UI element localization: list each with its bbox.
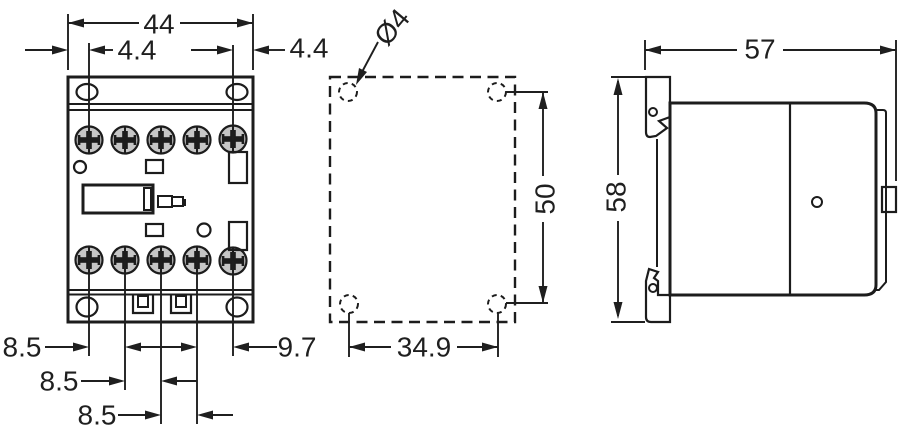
mounting-outline [330,77,515,322]
side-view: 57 58 [601,34,897,323]
front-aux-slot-bottom [229,222,247,250]
side-body-dot [812,197,822,207]
side-front-tab [882,187,896,212]
screw-terminal [184,127,211,154]
mounting-dimensions: Ø4 50 34.9 [349,3,561,363]
front-indicator-dot [74,161,86,173]
front-slot-bottom-left [77,298,98,317]
dim-pitch1-label: 8.5 [3,332,42,363]
front-dimensions: 44 4.4 4.4 8.5 9.7 8.5 [3,9,329,431]
mounting-hole-view: Ø4 50 34.9 [330,3,561,363]
mounting-clip [133,296,153,313]
mounting-clip [171,296,191,313]
front-indicator-dot-2 [198,224,211,237]
technical-drawing-canvas: 44 4.4 4.4 8.5 9.7 8.5 [0,0,916,441]
dim-vertical-pitch-label: 50 [530,183,561,214]
mounting-hole-top-right [488,83,506,101]
dim-offset-right-label: 4.4 [290,33,329,64]
front-vent-bottom [146,224,163,236]
dim-hole-diameter-label: Ø4 [368,3,416,52]
front-label-window [83,185,153,213]
screw-terminal [148,127,175,154]
side-flange-hole-bottom [649,284,657,292]
front-slot-bottom-right [227,298,248,317]
front-aux-slot-top [229,152,247,183]
mounting-hole-bottom-right [488,295,506,313]
side-body [670,103,876,295]
dimension-drawing: 44 4.4 4.4 8.5 9.7 8.5 [0,0,916,441]
dim-pitch-right-label: 9.7 [278,332,317,363]
front-connector-a [158,196,172,207]
screw-terminal [112,127,139,154]
dim-horizontal-pitch-label: 34.9 [397,332,452,363]
side-flange-bottom [646,269,670,322]
front-slot-top-left [77,84,98,100]
dim-depth-label: 57 [744,34,775,65]
front-view: 44 4.4 4.4 8.5 9.7 8.5 [3,9,329,431]
mounting-hole-top-left [339,83,357,101]
front-slot-top-right [227,84,248,100]
mounting-hole-bottom-left [340,295,358,313]
side-flange-top [646,77,670,137]
front-connector-pin [182,199,186,206]
front-connector-b [172,197,183,206]
dim-height-label: 58 [601,181,632,212]
dim-pitch3-label: 8.5 [78,400,117,431]
dim-offset-left-label: 4.4 [118,35,157,66]
side-dimensions: 57 58 [601,34,897,323]
dim-pitch2-label: 8.5 [40,366,79,397]
side-flange-hole-top [649,108,657,116]
front-vent-top [146,160,163,173]
front-label-window-tab [144,188,151,210]
